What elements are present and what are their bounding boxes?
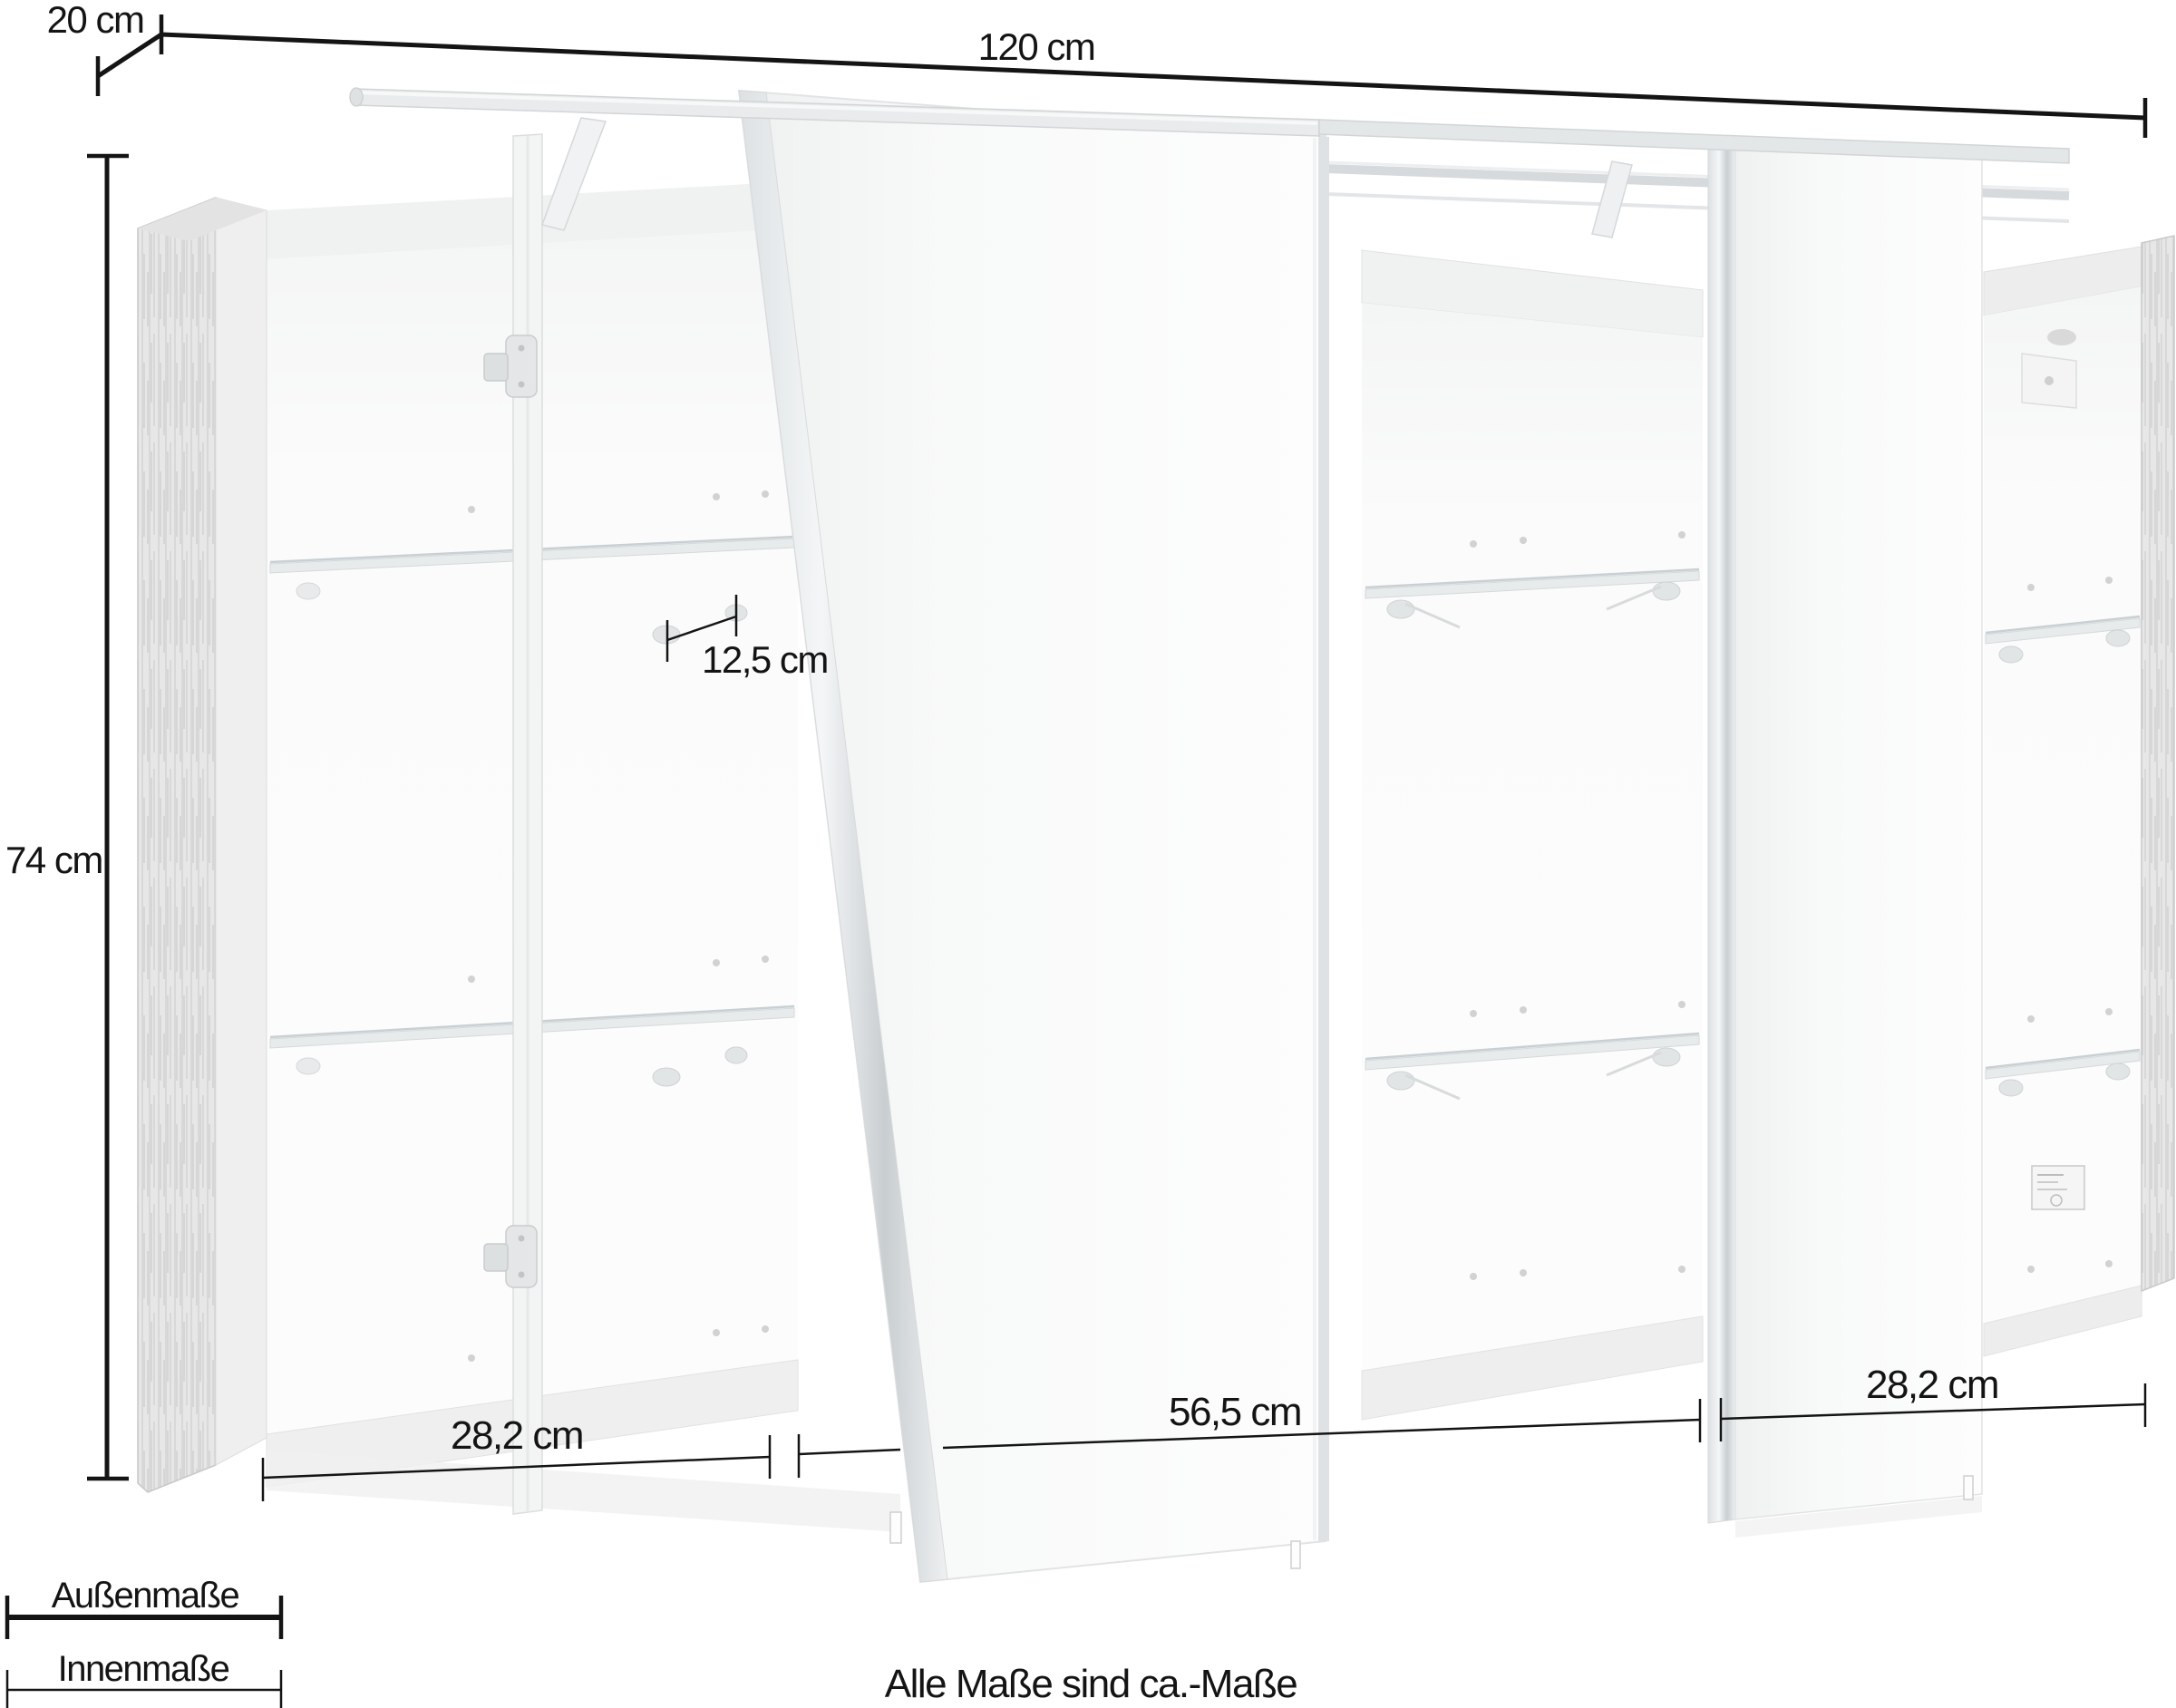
dimension-shelf-depth-label: 12,5 cm: [702, 638, 828, 681]
led-cable-hole: [2047, 329, 2076, 345]
mirror-cabinet-dimension-diagram: 20 cm 120 cm 74 cm 12,5 cm 28,2 cm 56,5 …: [0, 0, 2176, 1708]
legend-outer-label: Außenmaße: [52, 1576, 239, 1616]
dimension-section-left-label: 28,2 cm: [451, 1413, 583, 1458]
center-mirror-door: [739, 91, 1329, 1582]
right-compartment: [1984, 247, 2142, 1356]
dimension-height-label: 74 cm: [5, 839, 102, 881]
footnote: Alle Maße sind ca.-Maße: [885, 1662, 1297, 1706]
door-chrome-edge: [1318, 136, 1329, 1542]
legend-inner-label: Innenmaße: [58, 1649, 229, 1689]
dimension-depth-label: 20 cm: [47, 0, 144, 41]
dimension-height: [87, 156, 129, 1479]
left-side-panel: [138, 198, 267, 1492]
center-compartment: [1362, 250, 1703, 1420]
floor-shadow: [267, 1451, 900, 1532]
dimension-section-middle-label: 56,5 cm: [1169, 1390, 1301, 1434]
right-door: [1708, 136, 1982, 1538]
right-side-panel: [2142, 236, 2174, 1291]
cabinet-illustration: [138, 88, 2174, 1582]
diagram-canvas: 20 cm 120 cm 74 cm 12,5 cm 28,2 cm 56,5 …: [0, 0, 2176, 1708]
dimension-width-label: 120 cm: [978, 25, 1095, 68]
product-label-sticker: [2032, 1166, 2084, 1209]
dimension-section-right-label: 28,2 cm: [1866, 1363, 1998, 1407]
